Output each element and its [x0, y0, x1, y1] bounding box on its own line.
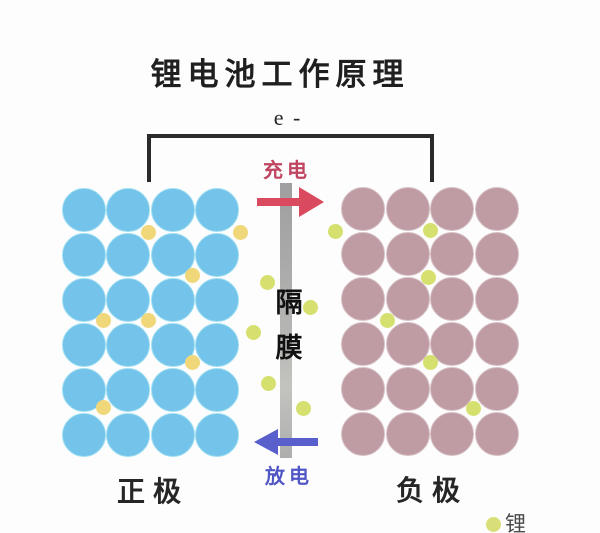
lithium-ion-dot: [423, 355, 438, 370]
left-electrode-particle: [151, 413, 195, 457]
left-electrode-particle: [106, 413, 150, 457]
cathode-label: 正极: [88, 470, 218, 510]
lithium-ion-dot: [185, 355, 200, 370]
charge-arrow-icon: [255, 185, 325, 219]
anode-label: 负极: [367, 469, 497, 509]
right-electrode-particle: [386, 187, 430, 231]
right-electrode-particle: [341, 232, 385, 276]
legend-label: 锂: [505, 512, 526, 533]
left-electrode-particle: [62, 323, 106, 367]
lithium-ion-dot: [141, 225, 156, 240]
left-electrode-particle: [62, 233, 106, 277]
right-electrode-particle: [475, 322, 519, 366]
left-electrode-particle: [151, 188, 195, 232]
left-electrode-particle: [195, 368, 239, 412]
right-electrode-particle: [341, 187, 385, 231]
left-electrode-particle: [195, 278, 239, 322]
right-electrode-particle: [386, 232, 430, 276]
left-electrode-particle: [62, 413, 106, 457]
lithium-ion-dot: [260, 275, 275, 290]
charge-arrow-shape: [257, 187, 324, 217]
lithium-ion-dot: [233, 225, 248, 240]
lithium-ion-dot: [380, 313, 395, 328]
legend: 锂: [486, 512, 526, 533]
right-electrode-particle: [475, 412, 519, 456]
lithium-ion-dot: [141, 313, 156, 328]
left-electrode-particle: [195, 323, 239, 367]
charge-label: 充电: [242, 154, 332, 183]
left-electrode-particle: [62, 188, 106, 232]
left-electrode-particle: [106, 323, 150, 367]
left-electrode-particle: [195, 233, 239, 277]
right-electrode-particle: [430, 187, 474, 231]
electron-flow-label: e -: [238, 105, 338, 131]
right-electrode-particle: [475, 187, 519, 231]
right-electrode-particle: [341, 322, 385, 366]
left-electrode-particle: [106, 233, 150, 277]
right-electrode-particle: [341, 367, 385, 411]
left-electrode-particle: [106, 368, 150, 412]
right-electrode-particle: [475, 277, 519, 321]
right-electrode-particle: [430, 412, 474, 456]
left-electrode-particle: [195, 413, 239, 457]
lithium-ion-dot: [466, 401, 481, 416]
right-electrode-particle: [475, 232, 519, 276]
lithium-ion-dot: [423, 223, 438, 238]
lithium-ion-dot: [185, 268, 200, 283]
lithium-ion-dot: [328, 224, 343, 239]
lithium-ion-dot: [421, 270, 436, 285]
discharge-arrow-shape: [254, 429, 318, 455]
right-electrode-particle: [430, 232, 474, 276]
right-electrode-particle: [386, 412, 430, 456]
discharge-label: 放电: [244, 460, 334, 489]
discharge-arrow-icon: [252, 428, 320, 456]
separator-char-2: 膜: [276, 334, 303, 362]
lithium-dot-icon: [486, 517, 501, 532]
lithium-ion-dot: [296, 401, 311, 416]
right-electrode-particle: [430, 277, 474, 321]
right-electrode-particle: [475, 367, 519, 411]
battery-diagram: 锂电池工作原理 e - 隔 膜 充电 放电 正极 负极 锂: [0, 0, 600, 533]
lithium-ion-dot: [261, 376, 276, 391]
left-electrode-particle: [151, 368, 195, 412]
right-electrode-particle: [341, 412, 385, 456]
left-electrode-particle: [195, 188, 239, 232]
left-electrode-particle: [151, 278, 195, 322]
separator-label: 隔 膜: [270, 289, 308, 362]
right-electrode-particle: [386, 367, 430, 411]
separator-char-1: 隔: [276, 289, 303, 317]
lithium-ion-dot: [96, 313, 111, 328]
page-title: 锂电池工作原理: [0, 49, 560, 94]
right-electrode-particle: [341, 277, 385, 321]
lithium-ion-dot: [246, 325, 261, 340]
lithium-ion-dot: [96, 400, 111, 415]
